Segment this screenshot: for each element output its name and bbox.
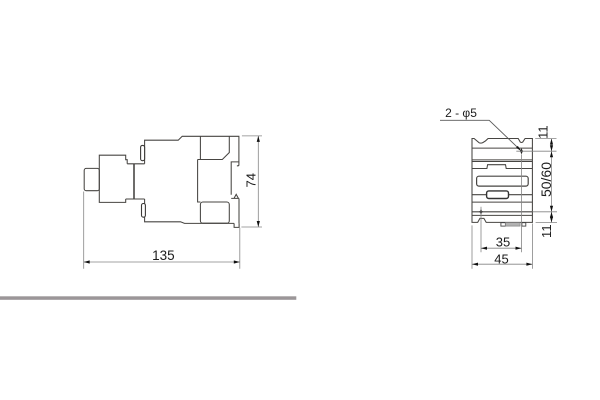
svg-text:11: 11 [536,125,551,139]
svg-text:74: 74 [243,173,258,187]
svg-text:11: 11 [539,224,554,238]
svg-text:2 - φ5: 2 - φ5 [445,106,477,120]
svg-text:135: 135 [152,248,175,263]
svg-text:45: 45 [494,251,508,266]
svg-text:35: 35 [496,235,510,250]
svg-text:50/60: 50/60 [538,162,554,197]
